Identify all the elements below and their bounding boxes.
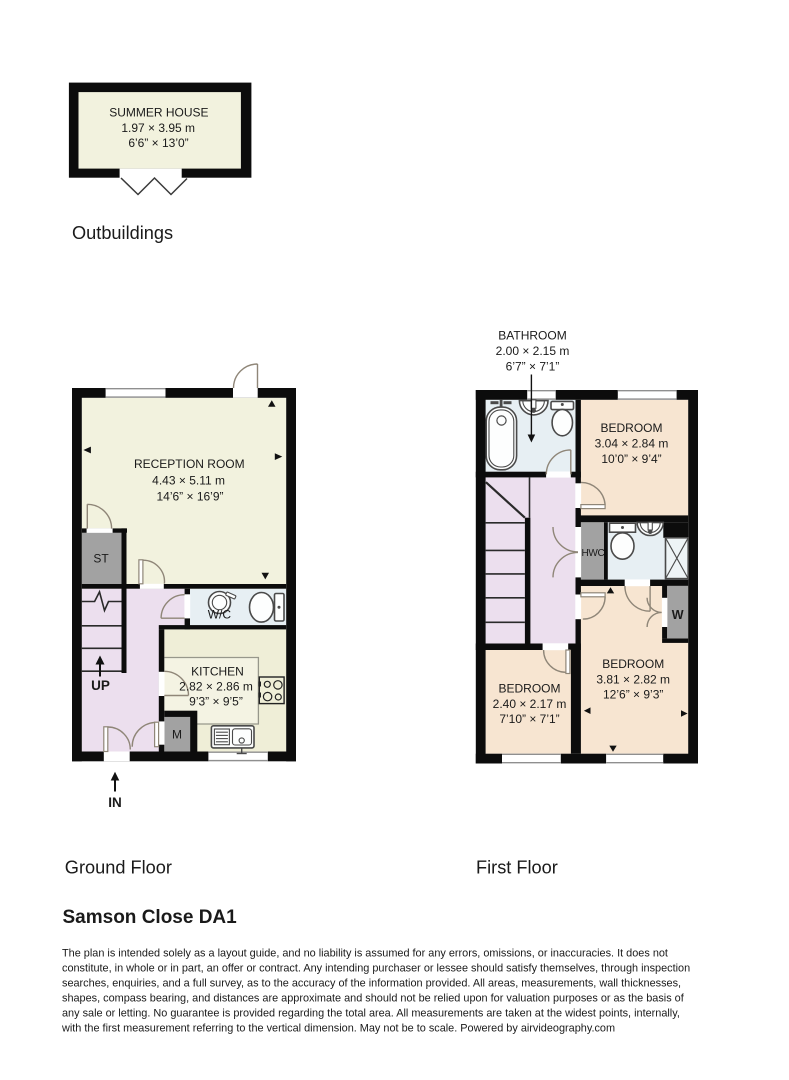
- svg-text:2.40 × 2.17 m: 2.40 × 2.17 m: [493, 697, 567, 711]
- svg-text:6’6” × 13’0”: 6’6” × 13’0”: [128, 136, 188, 150]
- svg-text:KITCHEN: KITCHEN: [191, 665, 244, 679]
- svg-text:The plan is intended solely as: The plan is intended solely as a layout …: [62, 948, 668, 960]
- svg-text:3.04 × 2.84 m: 3.04 × 2.84 m: [595, 437, 669, 451]
- svg-text:M: M: [172, 728, 182, 742]
- svg-text:shapes, compass bearing, and d: shapes, compass bearing, and distances a…: [62, 993, 685, 1005]
- svg-text:2.82 × 2.86 m: 2.82 × 2.86 m: [179, 680, 253, 694]
- svg-text:searches, enquiries, and a ful: searches, enquiries, and a full survey, …: [62, 978, 681, 990]
- svg-text:SUMMER HOUSE: SUMMER HOUSE: [109, 106, 208, 120]
- svg-text:any sale or letting. No guaran: any sale or letting. No guarantee is pro…: [62, 1008, 680, 1020]
- svg-text:10’0” × 9’4”: 10’0” × 9’4”: [601, 452, 661, 466]
- svg-text:14’6” × 16’9”: 14’6” × 16’9”: [156, 489, 223, 503]
- svg-text:constitute, in whole or in par: constitute, in whole or in part, an offe…: [62, 963, 690, 975]
- svg-text:RECEPTION ROOM: RECEPTION ROOM: [134, 457, 245, 471]
- svg-text:HWC: HWC: [582, 548, 605, 559]
- svg-text:BEDROOM: BEDROOM: [498, 681, 560, 695]
- svg-text:ST: ST: [93, 552, 109, 566]
- svg-text:Ground Floor: Ground Floor: [65, 858, 172, 878]
- svg-text:7’10” × 7’1”: 7’10” × 7’1”: [499, 712, 559, 726]
- svg-text:9’3” × 9’5”: 9’3” × 9’5”: [189, 695, 243, 709]
- svg-text:BATHROOM: BATHROOM: [498, 329, 566, 343]
- svg-text:1.97 × 3.95 m: 1.97 × 3.95 m: [121, 121, 195, 135]
- svg-text:12’6” × 9’3”: 12’6” × 9’3”: [603, 687, 663, 701]
- svg-text:with the first measurement ref: with the first measurement referring to …: [61, 1023, 615, 1035]
- svg-text:4.43 × 5.11 m: 4.43 × 5.11 m: [152, 473, 225, 487]
- svg-text:BEDROOM: BEDROOM: [600, 421, 662, 435]
- svg-text:Outbuildings: Outbuildings: [72, 223, 173, 243]
- svg-text:3.81 × 2.82 m: 3.81 × 2.82 m: [596, 673, 670, 687]
- svg-text:W: W: [672, 608, 684, 622]
- svg-text:Samson Close DA1: Samson Close DA1: [63, 907, 238, 928]
- svg-text:First Floor: First Floor: [476, 858, 558, 878]
- svg-text:2.00 × 2.15 m: 2.00 × 2.15 m: [496, 344, 570, 358]
- svg-text:UP: UP: [91, 678, 110, 693]
- svg-text:6’7” × 7’1”: 6’7” × 7’1”: [506, 359, 560, 373]
- svg-text:W/C: W/C: [208, 608, 232, 622]
- svg-text:IN: IN: [108, 795, 122, 810]
- svg-text:BEDROOM: BEDROOM: [602, 657, 664, 671]
